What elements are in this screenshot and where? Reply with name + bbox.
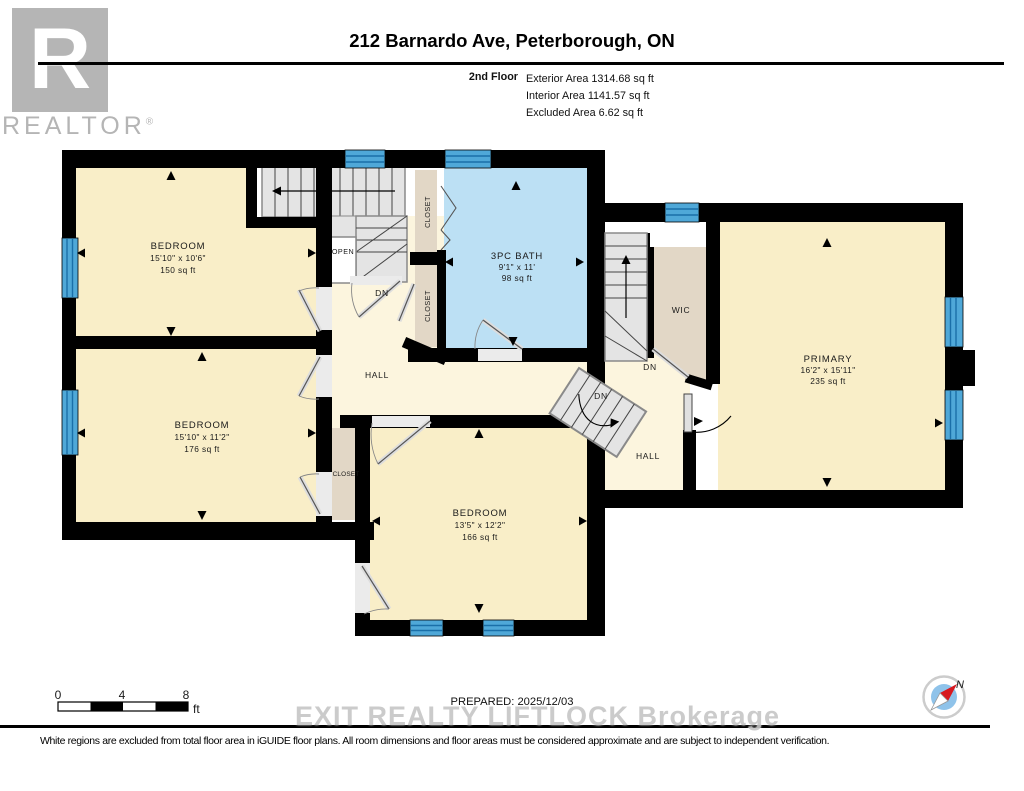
bedroom3-label: BEDROOM: [453, 508, 508, 519]
bedroom1-dims: 15'10" x 10'6": [150, 253, 206, 263]
bedroom2-area: 176 sq ft: [184, 444, 220, 454]
header-divider: [38, 62, 1004, 65]
compass-icon: N: [924, 677, 965, 718]
closet-top-label: CLOSET: [423, 196, 432, 228]
wic-label: WIC: [672, 305, 691, 315]
bath-label: 3PC BATH: [491, 251, 543, 262]
dn-upper-label: DN: [643, 362, 657, 372]
bedroom1-label: BEDROOM: [151, 241, 206, 252]
floor-plan-svg: BEDROOM 15'10" x 10'6" 150 sq ft BEDROOM…: [0, 0, 1024, 791]
scale-tick-8: 8: [183, 688, 190, 702]
scale-unit: ft: [193, 702, 200, 716]
hall-left-label: HALL: [365, 370, 389, 380]
bedroom2-dims: 15'10" x 11'2": [174, 432, 229, 442]
primary-area: 235 sq ft: [810, 376, 846, 386]
primary-door-arrow-icon: [694, 417, 703, 426]
primary-dims: 16'2" x 15'11": [800, 365, 855, 375]
closet-mid-label: CLOSET: [423, 290, 432, 322]
closet-small-label: CLOSET: [333, 471, 360, 478]
primary-door-leaf: [684, 394, 692, 432]
primary-label: PRIMARY: [804, 354, 853, 365]
dn-lower-label: DN: [594, 391, 608, 401]
scale-tick-0: 0: [55, 688, 62, 702]
bedroom3-area: 166 sq ft: [462, 532, 498, 542]
bedroom2-label: BEDROOM: [175, 420, 230, 431]
compass-north-label: N: [956, 679, 964, 691]
prepared-date: PREPARED: 2025/12/03: [412, 696, 612, 708]
bath-area: 98 sq ft: [502, 273, 533, 283]
open-label: OPEN: [332, 247, 354, 256]
scale-bar: 0 4 8 ft: [55, 688, 201, 716]
scale-tick-4: 4: [119, 688, 126, 702]
disclaimer-text: White regions are excluded from total fl…: [40, 735, 829, 747]
bedroom1-area: 150 sq ft: [160, 265, 196, 275]
bath-dims: 9'1" x 11': [499, 262, 536, 272]
hall-right-label: HALL: [636, 451, 660, 461]
dn-left-label: DN: [375, 288, 389, 298]
floor-plan-page: R REALTOR® 212 Barnardo Ave, Peterboroug…: [0, 0, 1024, 791]
bedroom3-dims: 13'5" x 12'2": [455, 520, 506, 530]
